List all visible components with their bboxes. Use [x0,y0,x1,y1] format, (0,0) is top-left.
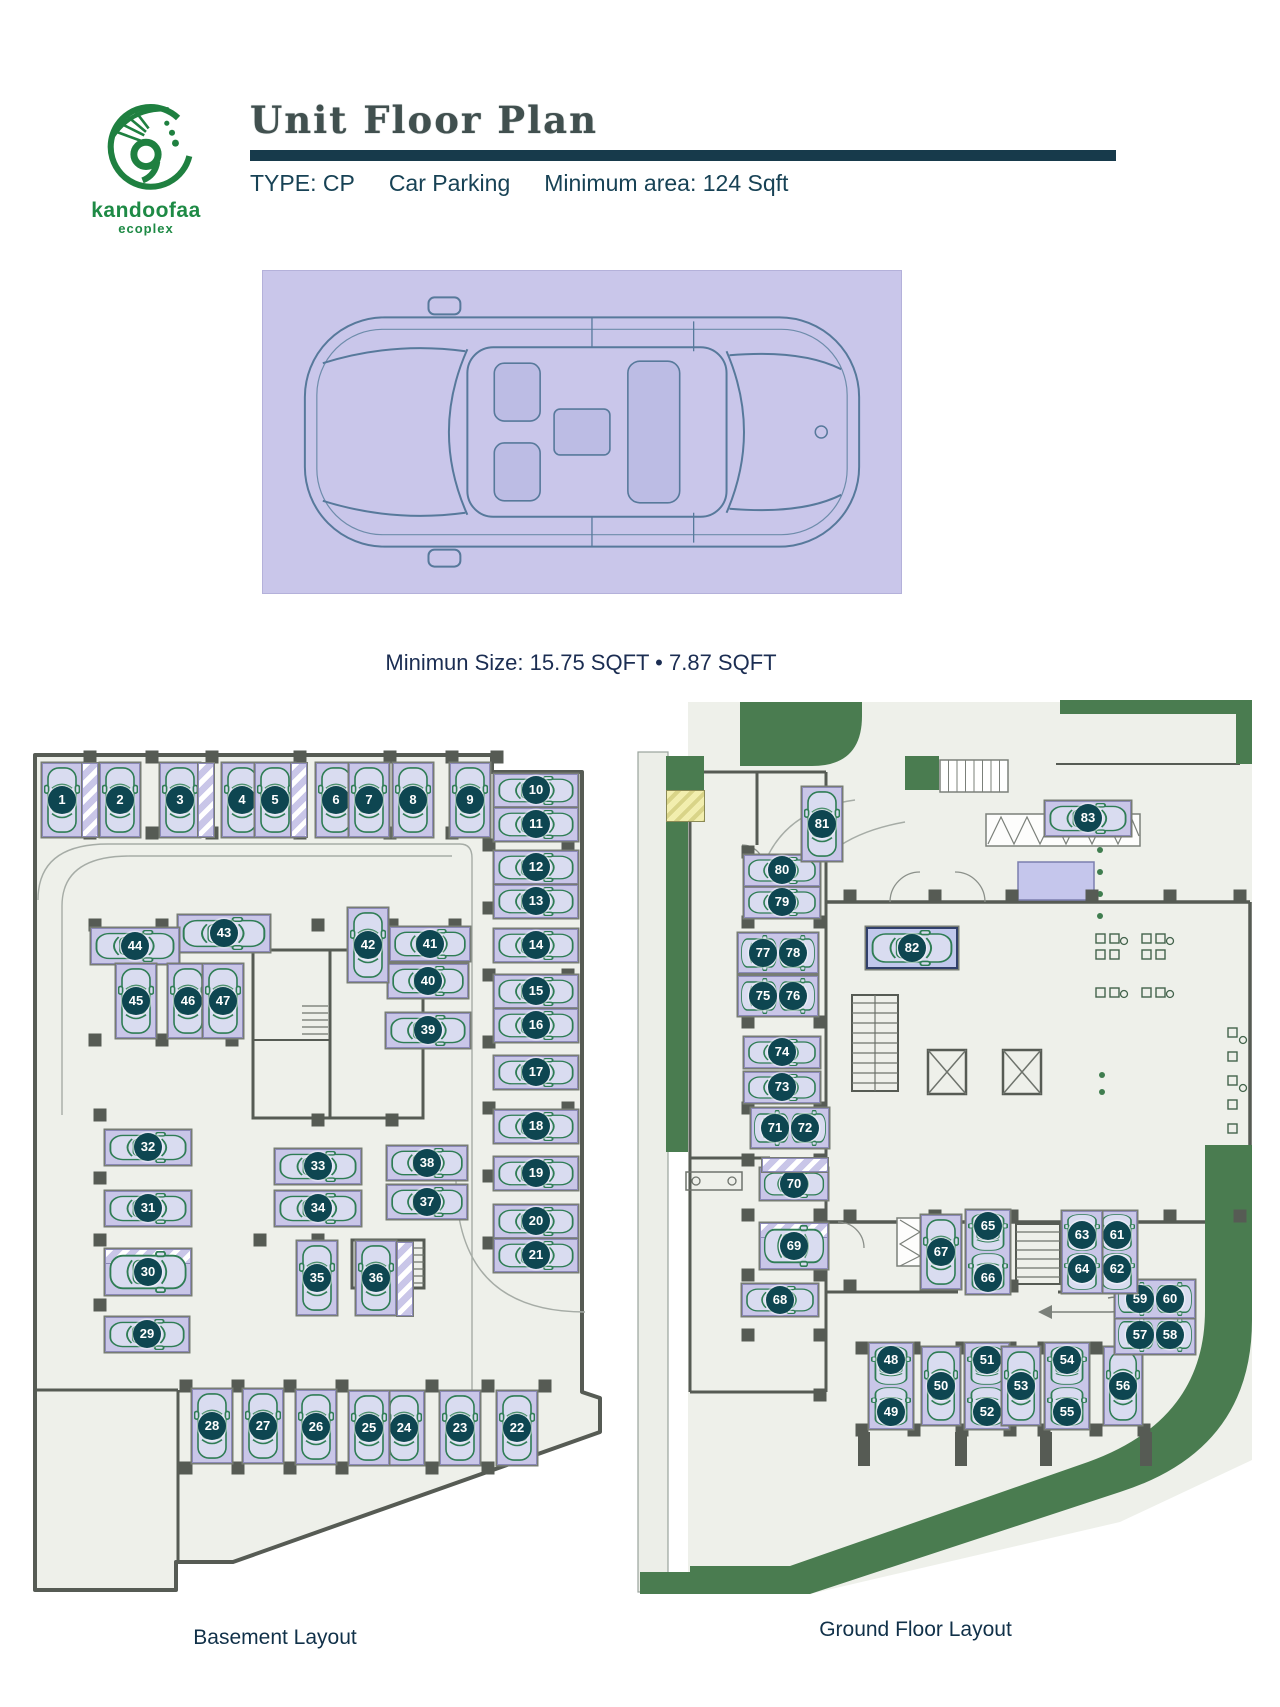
spot-number-badge: 42 [354,931,382,959]
parking-spot-53: 53 [1002,1347,1040,1425]
parking-spot-73: 73 [744,1072,820,1103]
parking-spot-28: 28 [192,1389,232,1463]
spot-number-badge: 40 [414,967,442,995]
spot-number-badge: 54 [1053,1346,1081,1374]
spot-number-badge: 1 [48,786,76,814]
spot-number-badge: 7 [355,786,383,814]
spot-number-badge: 8 [399,786,427,814]
parking-spot-45: 45 [116,964,156,1038]
parking-spot-29: 29 [105,1317,189,1352]
spot-number-badge: 14 [522,931,550,959]
parking-spot-30: 30 [105,1249,191,1295]
hatch-marking [198,763,214,837]
spot-number-badge: 17 [522,1058,550,1086]
spot-number-badge: 16 [522,1011,550,1039]
parking-spot-47: 47 [203,964,243,1038]
spot-number-badge: 47 [209,987,237,1015]
parking-spot-50: 50 [922,1347,960,1425]
parking-spot-14: 14 [494,929,578,962]
spot-number-badge: 61 [1103,1221,1131,1249]
spot-number-badge: 20 [522,1207,550,1235]
spot-number-badge: 11 [522,810,550,838]
parking-spot-61-62: 6162 [1097,1211,1137,1293]
parking-spot-82: 82 [866,927,958,969]
spot-number-badge: 81 [808,810,836,838]
parking-spot-35: 35 [297,1241,337,1315]
spot-number-badge: 31 [134,1194,162,1222]
hatch-marking [397,1242,413,1316]
spot-number-badge: 23 [446,1414,474,1442]
spot-number-badge: 51 [973,1346,1001,1374]
parking-spot-13: 13 [494,885,578,918]
spot-number-badge: 29 [133,1320,161,1348]
spot-number-badge: 46 [174,987,202,1015]
spot-number-badge: 18 [522,1112,550,1140]
parking-spot-1: 1 [42,763,82,837]
spot-number-badge: 35 [303,1264,331,1292]
parking-spot-31: 31 [105,1191,191,1226]
spot-number-badge: 21 [522,1241,550,1269]
ground-plan-label: Ground Floor Layout [798,1618,1033,1642]
parking-spot-10: 10 [494,774,578,807]
spot-number-badge: 82 [898,934,926,962]
spot-number-badge: 76 [779,982,807,1010]
spot-number-badge: 13 [522,887,550,915]
parking-spot-24: 24 [384,1391,424,1465]
spot-number-badge: 64 [1068,1255,1096,1283]
hatch-marking [291,763,307,837]
spot-number-badge: 58 [1156,1321,1184,1349]
parking-spot-16: 16 [494,1009,578,1042]
spot-number-badge: 43 [210,919,238,947]
spot-number-badge: 15 [522,977,550,1005]
parking-spot-79: 79 [744,887,820,918]
spot-number-badge: 45 [122,987,150,1015]
spot-number-badge: 19 [522,1159,550,1187]
spot-number-badge: 9 [456,786,484,814]
parking-spot-21: 21 [494,1239,578,1272]
parking-spot-33: 33 [275,1149,361,1184]
parking-spot-32: 32 [105,1130,191,1165]
spot-number-badge: 50 [927,1372,955,1400]
parking-spot-48-49: 4849 [869,1343,913,1429]
parking-spot-46: 46 [168,964,208,1038]
spot-number-badge: 38 [413,1149,441,1177]
parking-spot-42: 42 [348,908,388,982]
spot-number-badge: 5 [261,786,289,814]
parking-spots-layer: 1234567891011121314151617181920212223242… [0,0,1280,1707]
spot-number-badge: 72 [791,1114,819,1142]
spot-number-badge: 28 [198,1412,226,1440]
parking-spot-17: 17 [494,1056,578,1089]
spot-number-badge: 80 [768,856,796,884]
spot-number-badge: 26 [302,1413,330,1441]
spot-number-badge: 12 [522,853,550,881]
spot-number-badge: 34 [304,1194,332,1222]
parking-spot-75-76: 7576 [738,976,818,1016]
parking-spot-77-78: 7778 [738,933,818,973]
spot-number-badge: 30 [134,1258,162,1286]
parking-spot-34: 34 [275,1191,361,1226]
spot-number-badge: 65 [974,1212,1002,1240]
spot-number-badge: 77 [749,939,777,967]
spot-number-badge: 36 [362,1264,390,1292]
parking-spot-23: 23 [440,1391,480,1465]
spot-number-badge: 55 [1053,1398,1081,1426]
spot-number-badge: 69 [780,1232,808,1260]
parking-spot-57-58: 5758 [1115,1316,1195,1354]
basement-plan-label: Basement Layout [160,1626,390,1650]
parking-spot-43: 43 [178,915,270,952]
spot-number-badge: 56 [1109,1372,1137,1400]
spot-number-badge: 78 [779,939,807,967]
spot-number-badge: 32 [134,1133,162,1161]
parking-spot-25: 25 [349,1391,389,1465]
parking-spot-15: 15 [494,975,578,1008]
hatch-marking [82,763,98,837]
spot-number-badge: 39 [414,1016,442,1044]
spot-number-badge: 60 [1156,1285,1184,1313]
parking-spot-8: 8 [393,763,433,837]
parking-spot-2: 2 [100,763,140,837]
parking-spot-5: 5 [255,763,295,837]
parking-spot-12: 12 [494,851,578,884]
parking-spot-44: 44 [91,928,179,964]
spot-number-badge: 63 [1068,1221,1096,1249]
hatch-marking [762,1158,828,1172]
spot-number-badge: 24 [390,1414,418,1442]
spot-number-badge: 62 [1103,1255,1131,1283]
spot-number-badge: 53 [1007,1372,1035,1400]
spot-number-badge: 66 [974,1264,1002,1292]
spot-number-badge: 68 [766,1286,794,1314]
spot-number-badge: 70 [780,1170,808,1198]
parking-spot-27: 27 [243,1389,283,1463]
parking-spot-22: 22 [497,1391,537,1465]
spot-number-badge: 2 [106,786,134,814]
spot-number-badge: 49 [877,1398,905,1426]
spot-number-badge: 41 [416,930,444,958]
parking-spot-83: 83 [1045,801,1131,836]
parking-spot-74: 74 [744,1037,820,1068]
parking-spot-63-64: 6364 [1062,1211,1102,1293]
spot-number-badge: 6 [322,786,350,814]
spot-number-badge: 71 [761,1114,789,1142]
spot-number-badge: 48 [877,1346,905,1374]
spot-number-badge: 37 [413,1188,441,1216]
spot-number-badge: 74 [768,1038,796,1066]
parking-spot-20: 20 [494,1205,578,1238]
parking-spot-81: 81 [802,787,842,861]
spot-number-badge: 44 [121,932,149,960]
parking-spot-18: 18 [494,1110,578,1143]
spot-number-badge: 4 [228,786,256,814]
spot-number-badge: 52 [973,1398,1001,1426]
parking-spot-26: 26 [296,1390,336,1464]
parking-spot-39: 39 [386,1013,470,1048]
spot-number-badge: 75 [749,982,777,1010]
parking-spot-40: 40 [388,964,468,998]
spot-number-badge: 25 [355,1414,383,1442]
parking-spot-3: 3 [160,763,200,837]
parking-spot-9: 9 [450,763,490,837]
parking-spot-19: 19 [494,1157,578,1190]
spot-number-badge: 79 [768,888,796,916]
parking-spot-69: 69 [760,1223,828,1269]
parking-spot-67: 67 [921,1215,961,1289]
parking-spot-56: 56 [1104,1347,1142,1425]
spot-number-badge: 33 [304,1152,332,1180]
parking-spot-70: 70 [760,1168,828,1200]
parking-spot-11: 11 [494,808,578,841]
parking-spot-54-55: 5455 [1045,1343,1089,1429]
parking-spot-37: 37 [387,1185,467,1219]
spot-number-badge: 27 [249,1412,277,1440]
parking-spot-38: 38 [387,1146,467,1180]
yellow-hatch-area [666,790,705,822]
parking-spot-71-72: 7172 [751,1108,829,1148]
spot-number-badge: 73 [768,1073,796,1101]
spot-number-badge: 57 [1126,1321,1154,1349]
parking-spot-7: 7 [349,763,389,837]
parking-spot-65-66: 6566 [966,1210,1010,1294]
parking-spot-36: 36 [356,1241,396,1315]
parking-spot-68: 68 [742,1284,818,1316]
spot-number-badge: 3 [166,786,194,814]
spot-number-badge: 83 [1074,804,1102,832]
spot-number-badge: 10 [522,776,550,804]
spot-number-badge: 67 [927,1238,955,1266]
spot-number-badge: 22 [503,1414,531,1442]
parking-spot-41: 41 [390,927,470,961]
